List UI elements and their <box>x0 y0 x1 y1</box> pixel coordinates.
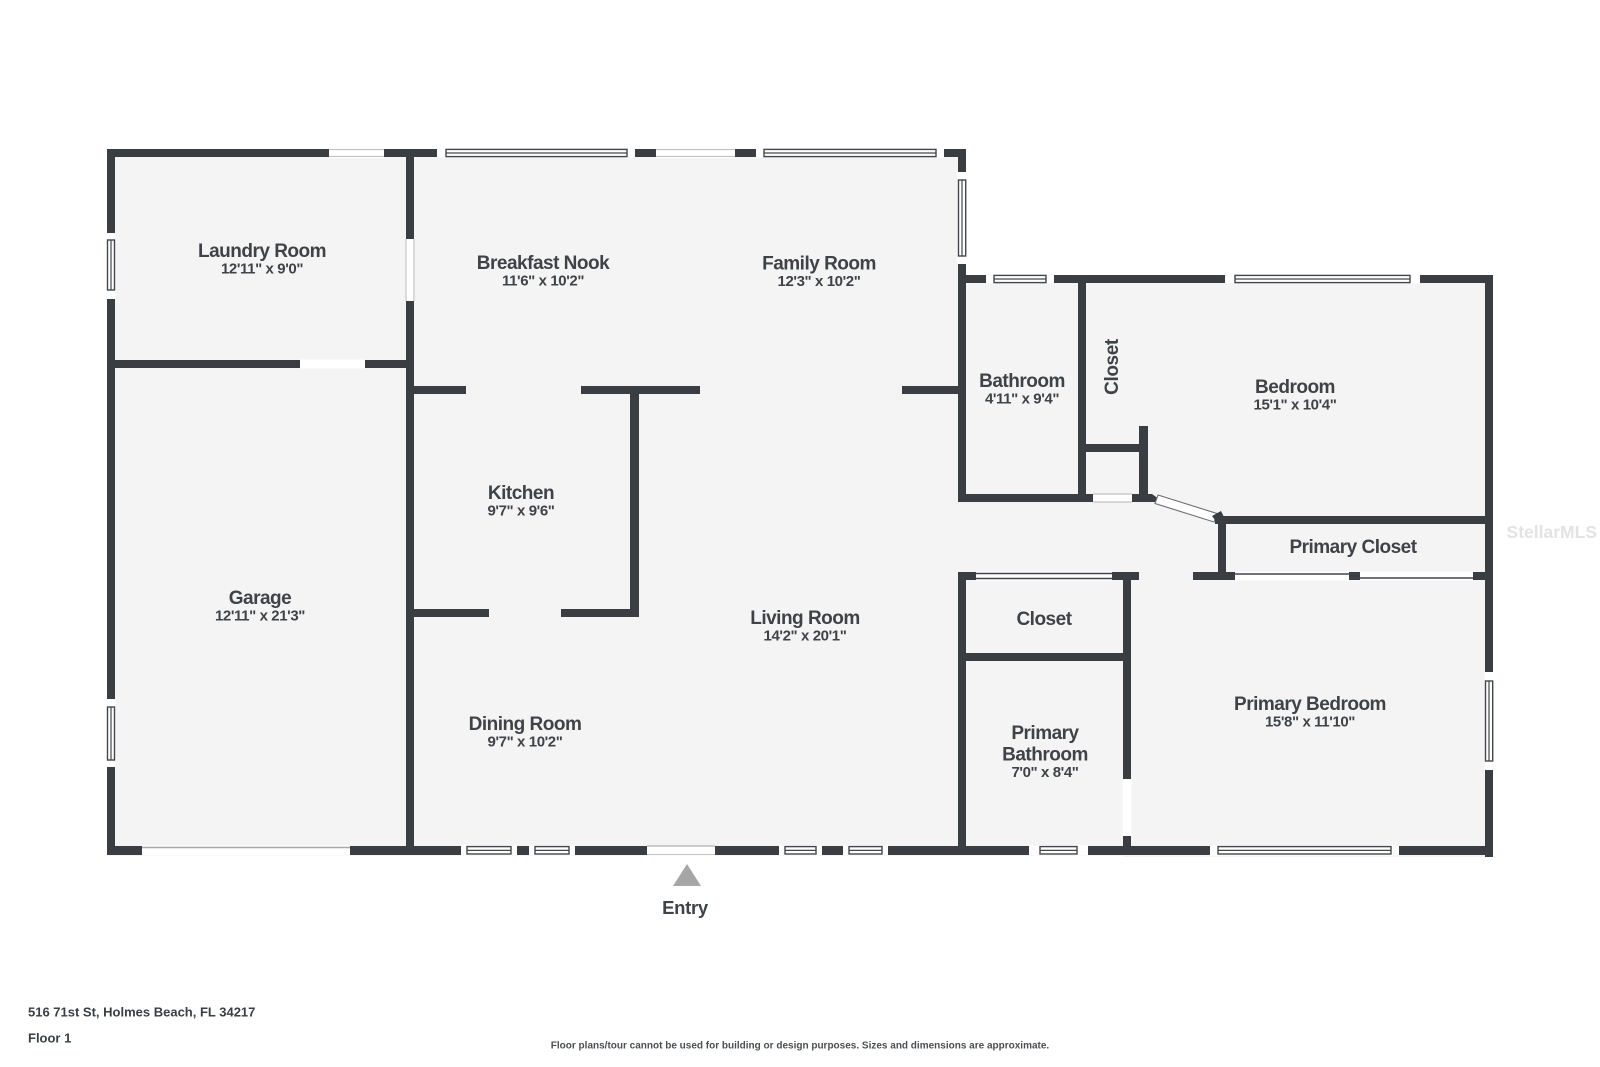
svg-text:Primary: Primary <box>1011 723 1079 744</box>
svg-text:9'7" x 9'6": 9'7" x 9'6" <box>487 503 554 520</box>
svg-text:14'2" x 20'1": 14'2" x 20'1" <box>764 628 847 645</box>
svg-text:516 71st St, Holmes Beach, FL: 516 71st St, Holmes Beach, FL 34217 <box>28 1005 255 1020</box>
svg-text:Garage: Garage <box>229 588 291 609</box>
svg-text:9'7" x 10'2": 9'7" x 10'2" <box>488 734 563 751</box>
svg-text:Primary Closet: Primary Closet <box>1289 537 1417 558</box>
svg-text:Bedroom: Bedroom <box>1255 377 1335 398</box>
svg-text:12'11" x 9'0": 12'11" x 9'0" <box>221 261 303 278</box>
svg-text:4'11" x 9'4": 4'11" x 9'4" <box>985 391 1059 408</box>
svg-text:Dining Room: Dining Room <box>469 714 582 735</box>
svg-text:Floor plans/tour cannot be use: Floor plans/tour cannot be used for buil… <box>551 1041 1050 1052</box>
svg-text:Closet: Closet <box>1102 338 1123 395</box>
svg-text:7'0" x 8'4": 7'0" x 8'4" <box>1011 764 1078 781</box>
svg-text:11'6" x 10'2": 11'6" x 10'2" <box>502 273 584 290</box>
svg-text:Living Room: Living Room <box>750 608 860 629</box>
svg-text:Bathroom: Bathroom <box>979 371 1065 392</box>
svg-text:12'3" x 10'2": 12'3" x 10'2" <box>778 273 861 290</box>
svg-text:Kitchen: Kitchen <box>488 483 554 504</box>
svg-text:StellarMLS: StellarMLS <box>1507 522 1597 542</box>
svg-text:Primary Bedroom: Primary Bedroom <box>1234 694 1386 715</box>
svg-text:Laundry Room: Laundry Room <box>198 241 326 262</box>
svg-text:Breakfast Nook: Breakfast Nook <box>477 253 610 274</box>
svg-text:15'1" x 10'4": 15'1" x 10'4" <box>1254 397 1337 414</box>
svg-text:15'8" x 11'10": 15'8" x 11'10" <box>1265 714 1355 731</box>
svg-text:Bathroom: Bathroom <box>1002 745 1088 766</box>
svg-text:Floor 1: Floor 1 <box>28 1031 71 1046</box>
svg-text:12'11" x 21'3": 12'11" x 21'3" <box>215 608 305 625</box>
svg-text:Family Room: Family Room <box>762 254 876 275</box>
svg-text:Closet: Closet <box>1016 609 1072 630</box>
svg-text:Entry: Entry <box>662 897 709 918</box>
